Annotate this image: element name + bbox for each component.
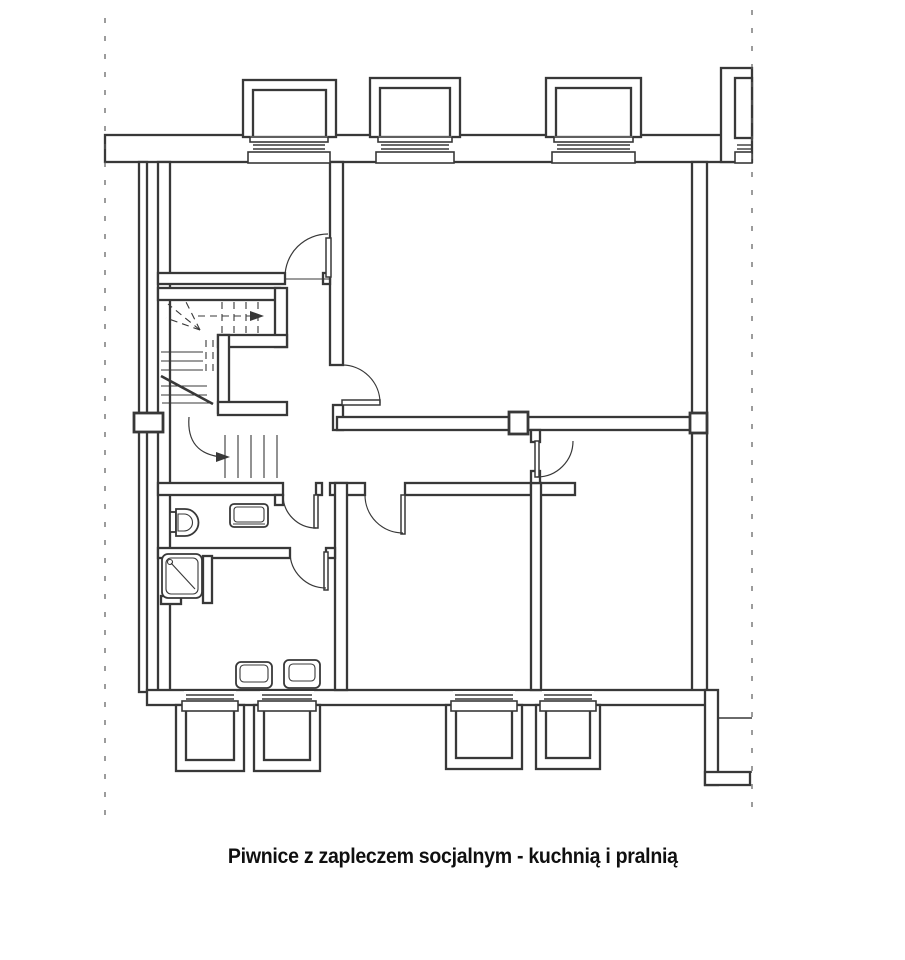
wc-bowl — [176, 509, 199, 536]
door-corridor-leaf — [535, 441, 539, 477]
bath-door-strike — [316, 483, 322, 495]
window4-sill — [735, 152, 752, 163]
door-room1-leaf — [326, 238, 331, 277]
plan-caption-text: Piwnice z zapleczem socjalnym - kuchnią … — [228, 845, 678, 869]
bayB-inner — [264, 705, 310, 760]
windowA-sill — [182, 701, 238, 711]
floor-plan-svg — [0, 0, 905, 960]
pier-right — [690, 413, 707, 433]
window3-frame — [554, 137, 633, 142]
stair-route-arrow — [189, 417, 222, 457]
divider-laundry — [335, 483, 347, 690]
bath-door-jamb — [275, 495, 283, 505]
bay2-inner — [380, 88, 450, 137]
door-kitchenroom-arc — [365, 495, 403, 533]
windowC-sill — [451, 701, 517, 711]
bayA-inner — [186, 705, 234, 760]
stair-top-wall — [158, 288, 280, 300]
stair-winder-1 — [168, 304, 200, 330]
bayD-inner — [546, 705, 590, 758]
window1-frame — [250, 137, 328, 142]
divider-top-rooms — [330, 162, 343, 365]
door-bigroom-arc — [342, 365, 380, 403]
bay3-inner — [556, 88, 631, 137]
door-bath-arc — [283, 495, 316, 528]
bayC-inner — [456, 705, 512, 758]
door-laundry-leaf — [324, 552, 328, 590]
stair-up-arrow-head — [250, 311, 264, 321]
room1-bottom-wall — [158, 273, 285, 284]
window2-frame — [378, 137, 452, 142]
corridor-bottom-wall-d — [540, 483, 575, 495]
divider-kitchen — [531, 483, 541, 690]
bay1-inner — [253, 90, 326, 137]
door-room1-arc — [285, 234, 328, 277]
corridor-bottom-wall-a — [158, 483, 283, 495]
stair-route-arrow-head — [216, 452, 230, 462]
pier-chimney — [509, 412, 528, 434]
recess-niche — [718, 718, 752, 772]
window1-sill — [248, 152, 330, 163]
door-bigroom-leaf — [342, 400, 380, 405]
windowD-sill — [540, 701, 596, 711]
scanned-floor-plan-page: Piwnice z zapleczem socjalnym - kuchnią … — [0, 0, 905, 960]
recess-wall-vertical — [705, 690, 718, 785]
corridor-bottom-wall-c — [405, 483, 531, 495]
window3-sill — [552, 152, 635, 163]
floor-plan-shapes — [105, 10, 752, 822]
plan-caption: Piwnice z zapleczem socjalnym - kuchnią … — [0, 845, 905, 869]
window2-sill — [376, 152, 454, 163]
door-kitchenroom-leaf — [401, 495, 405, 534]
door-corridor-arc — [537, 441, 573, 477]
bay4-inner — [735, 78, 752, 138]
pier-left — [134, 413, 163, 432]
windowB-sill — [258, 701, 316, 711]
recess-wall-bottom — [705, 772, 750, 785]
shower-wall — [203, 556, 212, 603]
corridor-top-wall-left — [218, 402, 287, 415]
door-laundry-arc — [290, 552, 326, 588]
corridor-door-jamb-top — [531, 430, 540, 442]
door-bath-leaf — [314, 495, 318, 528]
